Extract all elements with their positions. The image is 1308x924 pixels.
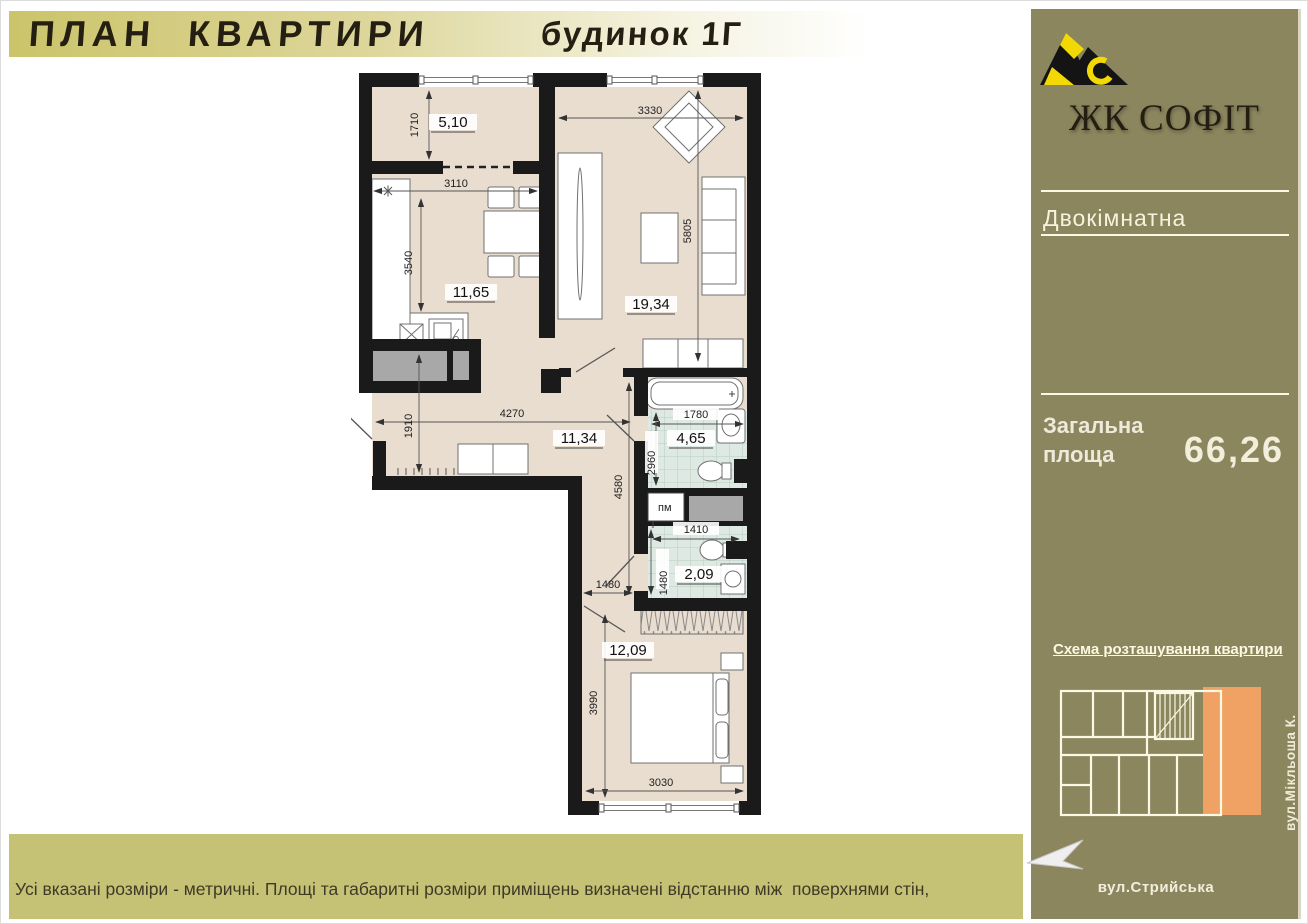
wc-washbasin [721,564,745,594]
entrance-door-swing [351,402,372,439]
divider [1041,190,1289,192]
flyer-page: ПЛАН КВАРТИРИ будинок 1Г [0,0,1308,924]
direction-arrow-icon [1023,833,1093,877]
dim-corridor-h: 4580 [613,475,625,499]
svg-text:11,65: 11,65 [453,284,489,301]
brand-logo-icon [1036,17,1156,89]
tv-cabinet [558,153,602,319]
sofa [702,177,745,295]
pantry-label: пм [658,502,672,514]
area-bath: 4,65 [667,430,715,448]
svg-text:11,34: 11,34 [561,430,597,447]
dresser [643,339,743,368]
highlighted-apartment [1203,687,1261,815]
total-area-label: Загальна площа [1043,411,1143,469]
svg-text:19,34: 19,34 [632,296,670,313]
svg-text:5,10: 5,10 [438,114,467,131]
disclaimer-line: Усі вказані розміри - метричні. Площі та… [15,879,1017,900]
stairs [1155,693,1193,739]
total-area-value: 66,26 [1184,429,1284,471]
dim-kitchen-w: 3110 [444,178,468,190]
dim-hall-w: 4270 [500,408,524,420]
street-label-bottom: вул.Стрийська [1031,879,1281,896]
dim-kitchen-h: 3540 [403,251,415,275]
dim-corridor-w: 1480 [596,579,620,591]
area-hall: 11,34 [553,430,605,448]
dim-balcony-h: 1710 [409,113,421,137]
svg-text:2,09: 2,09 [684,566,713,583]
area-living: 19,34 [625,296,677,314]
street-label-vertical: вул.Мікльоша К. [1283,671,1298,831]
bath-washbasin [717,409,745,443]
scheme-title: Схема розташування квартири [1053,641,1283,658]
area-kitchen: 11,65 [445,284,497,302]
living-window [607,73,703,87]
divider [1041,393,1289,395]
dim-living-w: 3330 [638,105,662,117]
dim-living-h: 5805 [682,219,694,243]
dim-bath-h: 2960 [646,451,658,475]
area-bedroom: 12,09 [602,642,654,660]
dim-bath-w: 1780 [684,409,708,421]
mini-floorplan [1057,681,1265,823]
coffee-table [641,213,678,263]
disclaimer: Усі вказані розміри - метричні. Площі та… [9,834,1023,919]
divider [1041,234,1289,236]
balcony-window [419,73,533,87]
area-wc: 2,09 [675,566,723,584]
hall-wardrobe [458,444,528,474]
dim-wc-w: 1410 [684,524,708,536]
dim-hall-h: 1910 [403,414,415,438]
cooktop-symbol [383,186,394,197]
apartment-type-label: Двокімнатна [1043,205,1186,232]
dim-wc-h: 1480 [658,571,670,595]
dim-bedroom-h: 3990 [588,691,600,715]
bed [631,673,729,763]
building-label: будинок 1Г [540,15,744,53]
brand-name: ЖК СОФІТ [1031,97,1298,140]
sidebar: ЖК СОФІТ Двокімнатна Загальна площа 66,2… [1031,9,1301,919]
area-balcony: 5,10 [429,114,477,132]
bedroom-window [599,801,739,815]
svg-text:4,65: 4,65 [676,430,705,447]
bathtub [646,378,743,409]
page-title: ПЛАН КВАРТИРИ [28,13,432,55]
dim-bedroom-w: 3030 [649,777,673,789]
wc-toilet [700,540,730,560]
bath-toilet [698,461,731,481]
floor-plan: пм [351,56,769,831]
svg-text:12,09: 12,09 [609,642,647,659]
